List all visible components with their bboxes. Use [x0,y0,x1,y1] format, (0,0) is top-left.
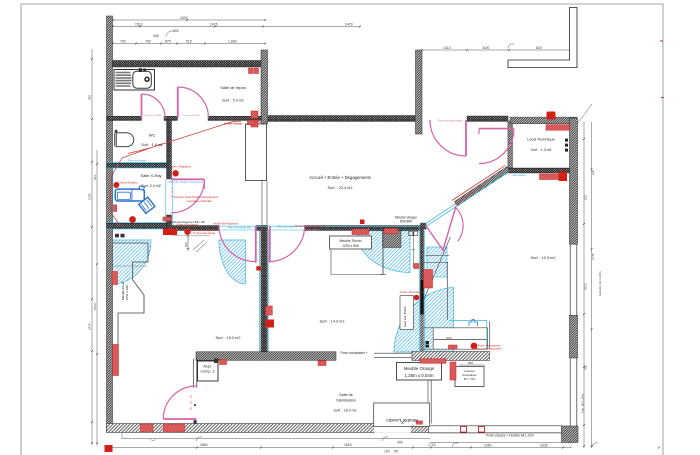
svg-text:233: 233 [584,195,588,200]
svg-text:WC: WC [149,133,156,138]
svg-text:Surf. : 1.8 m2: Surf. : 1.8 m2 [141,143,163,147]
svg-text:Surf. : 24.4 m2: Surf. : 24.4 m2 [328,186,353,190]
svg-text:Plan de travail stér.: Plan de travail stér. [228,225,252,229]
svg-text:110: 110 [591,170,595,175]
svg-text:1200 x 840: 1200 x 840 [342,244,359,248]
svg-text:915: 915 [186,40,192,44]
svg-text:Surf. : 18.0 m2: Surf. : 18.0 m2 [334,409,357,413]
svg-text:Surf. : 5.4 m2: Surf. : 5.4 m2 [222,99,244,103]
svg-text:1715: 1715 [428,443,436,447]
svg-text:936: 936 [153,34,159,38]
svg-text:Comp. 2: Comp. 2 [200,370,214,374]
svg-text:2475: 2475 [88,323,92,330]
svg-text:Surf. : 16.0 m2: Surf. : 16.0 m2 [216,336,241,340]
svg-text:Salle de: Salle de [339,393,353,397]
svg-text:1513: 1513 [93,303,97,310]
svg-text:1635: 1635 [540,444,548,448]
svg-text:1,600: 1,600 [228,40,237,44]
svg-text:Plan vasque: Plan vasque [512,174,526,177]
svg-text:400: 400 [184,242,188,247]
svg-text:1100: 1100 [88,193,92,200]
svg-text:500: 500 [88,95,92,100]
svg-text:933: 933 [93,175,97,180]
svg-text:2613: 2613 [584,283,588,290]
svg-text:Colonne Radiateur: Colonne Radiateur [118,181,137,184]
svg-text:400: 400 [397,441,403,445]
svg-text:875: 875 [165,40,171,44]
svg-text:Lave inst. 45x60: Lave inst. 45x60 [403,306,407,327]
svg-text:Prt x 710: Prt x 710 [464,377,476,381]
svg-text:Idem + Radiateurs: Idem + Radiateurs [171,166,191,169]
svg-text:50 plan 40 au dessus: 50 plan 40 au dessus [176,225,199,227]
svg-text:2475: 2475 [210,23,218,27]
svg-text:Salle de repos: Salle de repos [220,85,246,90]
svg-text:X: X [401,420,404,425]
svg-text:Meuble Orange: Meuble Orange [224,121,242,125]
svg-text:Plan de travail + éviers inox: Plan de travail + éviers inox [169,180,204,184]
svg-text:Porte badge: Porte badge [305,229,319,232]
svg-text:1100: 1100 [482,46,489,50]
svg-text:Stérilisation: Stérilisation [336,399,356,403]
svg-text:1,38m x 0,54m: 1,38m x 0,54m [404,373,433,378]
svg-text:Plan de travail: Plan de travail [128,159,146,163]
svg-text:Surf. : 14.3 m2: Surf. : 14.3 m2 [320,320,345,324]
svg-text:410: 410 [584,365,588,370]
svg-text:1475: 1475 [591,253,595,260]
svg-text:de + en bas/portes: de + en bas/portes [477,347,502,351]
svg-text:Meuble Tincho: Meuble Tincho [339,239,361,243]
svg-text:+ X2 prises haut dessus: + X2 prises haut dessus [191,232,216,235]
svg-text:2751 x 100: 2751 x 100 [125,285,129,300]
svg-text:Porte sécurisée badge: Porte sécurisée badge [438,119,463,122]
svg-text:Porte d'accès + Fenêtre All 1,: Porte d'accès + Fenêtre All 1,10m [486,434,534,438]
svg-text:2800: 2800 [200,443,208,447]
svg-text:600: 600 [447,336,452,340]
svg-text:Fenetre m2 1,10m: Fenetre m2 1,10m [598,271,602,296]
svg-text:Salle X-Ray: Salle X-Ray [140,173,161,178]
svg-text:Poste informatique: Poste informatique [400,290,424,294]
svg-text:Meuble haut Rangement 800 x 40: Meuble haut Rangement 800 x 400 [169,221,206,224]
svg-text:2479: 2479 [345,23,353,27]
svg-text:1615: 1615 [344,443,352,447]
svg-text:Local Technique: Local Technique [527,138,554,142]
svg-text:Porte accès PMR: Porte accès PMR [182,114,199,117]
svg-text:2350: 2350 [484,444,492,448]
svg-text:Aspi.: Aspi. [203,365,211,369]
svg-text:100: 100 [384,450,390,454]
svg-text:consoles et Murale: consoles et Murale [186,199,212,203]
svg-text:Meuble Orange: Meuble Orange [404,366,435,371]
svg-text:700: 700 [145,40,151,44]
svg-text:4303: 4303 [180,16,188,20]
svg-text:95: 95 [394,450,398,454]
svg-text:Accueil + Entrée + Dégagements: Accueil + Entrée + Dégagements [309,175,370,180]
svg-text:1513: 1513 [135,23,143,27]
svg-text:Plan de travail: Plan de travail [277,225,295,229]
svg-text:650: 650 [468,361,473,365]
svg-text:Porte accès PMR: Porte accès PMR [144,114,161,117]
svg-text:Porte coulissante +: Porte coulissante + [340,351,367,355]
svg-text:600x840: 600x840 [400,220,412,224]
svg-text:1313: 1313 [443,46,451,50]
svg-text:700: 700 [120,40,126,44]
svg-text:Surf. 2.4 m2: Surf. 2.4 m2 [141,184,161,188]
svg-text:Surf. : 10.3 m2: Surf. : 10.3 m2 [531,256,556,260]
svg-text:Meuble Bas Rangement: Meuble Bas Rangement [191,229,216,232]
svg-text:823: 823 [536,46,542,50]
svg-text:Fen. h0 1,10m: Fen. h0 1,10m [581,393,585,413]
svg-text:Surf. : 1.0 m2: Surf. : 1.0 m2 [530,148,551,152]
